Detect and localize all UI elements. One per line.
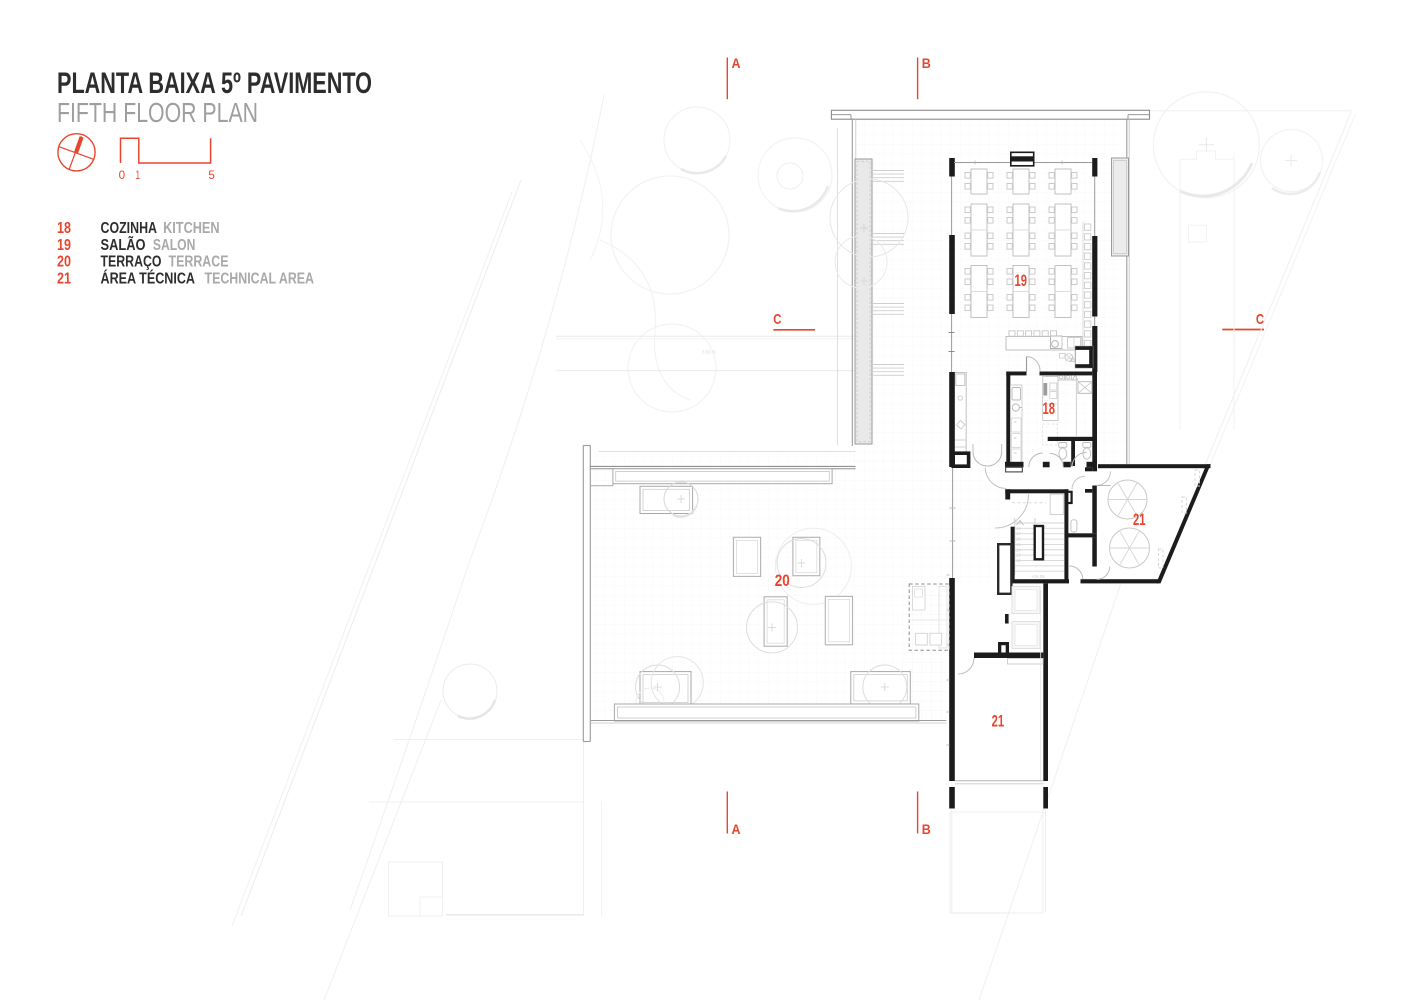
- svg-text:A: A: [732, 822, 741, 837]
- svg-text:19: 19: [1015, 271, 1028, 290]
- svg-text:19: 19: [57, 237, 71, 254]
- svg-text:ÁREA TÉCNICA: ÁREA TÉCNICA: [101, 270, 196, 287]
- svg-text:KITCHEN: KITCHEN: [163, 220, 220, 237]
- svg-text:13: 13: [1016, 553, 1021, 558]
- svg-text:20: 20: [775, 571, 790, 590]
- svg-text:3.50 %: 3.50 %: [702, 350, 716, 355]
- svg-text:12: 12: [1016, 558, 1021, 563]
- svg-text:21: 21: [57, 270, 71, 287]
- svg-text:18: 18: [1016, 526, 1021, 531]
- svg-text:21: 21: [1133, 510, 1146, 529]
- svg-text:0: 0: [119, 170, 126, 182]
- svg-text:TECHNICAL AREA: TECHNICAL AREA: [205, 270, 315, 287]
- svg-text:21: 21: [992, 712, 1005, 731]
- svg-text:18: 18: [57, 220, 71, 237]
- svg-text:5: 5: [208, 170, 215, 182]
- svg-text:TERRACE: TERRACE: [169, 254, 229, 271]
- svg-text:SALÃO: SALÃO: [101, 236, 146, 254]
- svg-text:1: 1: [136, 170, 141, 182]
- svg-text:B: B: [922, 822, 931, 837]
- svg-text:16: 16: [1016, 537, 1021, 542]
- svg-text:B: B: [922, 56, 931, 71]
- svg-text:PLANTA BAIXA 5º PAVIMENTO: PLANTA BAIXA 5º PAVIMENTO: [57, 67, 372, 100]
- svg-text:14: 14: [1016, 547, 1021, 552]
- svg-text:19: 19: [1016, 521, 1021, 526]
- svg-text:A: A: [732, 56, 741, 71]
- svg-text:20: 20: [57, 254, 71, 271]
- svg-text:TERRAÇO: TERRAÇO: [101, 254, 162, 271]
- svg-text:COZINHA: COZINHA: [101, 220, 158, 237]
- svg-text:FIFTH FLOOR PLAN: FIFTH FLOOR PLAN: [57, 97, 258, 128]
- svg-text:C: C: [773, 311, 781, 328]
- svg-text:17: 17: [1016, 531, 1021, 536]
- svg-text:+15.05: +15.05: [1031, 574, 1045, 579]
- svg-text:SALON: SALON: [153, 237, 196, 254]
- svg-text:15: 15: [1016, 542, 1021, 547]
- svg-text:18: 18: [1042, 399, 1055, 418]
